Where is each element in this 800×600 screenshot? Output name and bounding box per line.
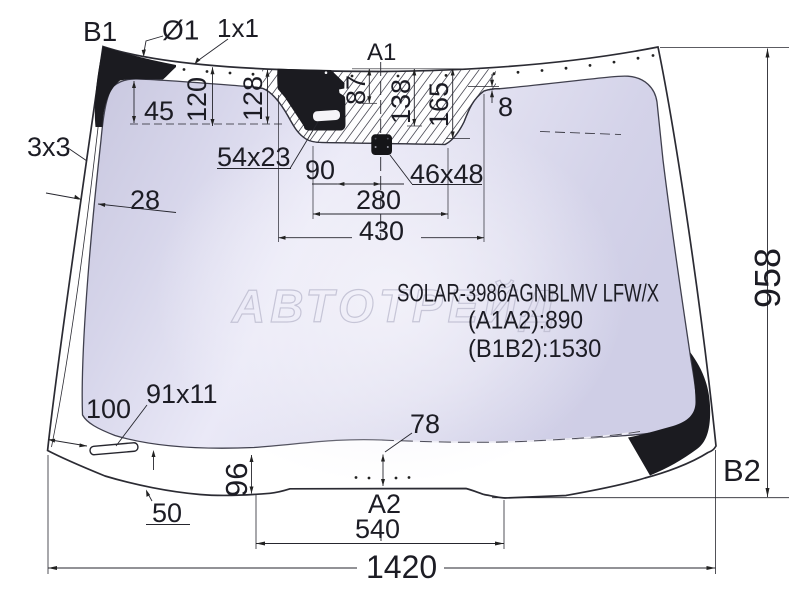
svg-text:87: 87 (341, 75, 371, 105)
svg-text:1420: 1420 (366, 549, 437, 585)
svg-text:54x23: 54x23 (217, 142, 291, 172)
svg-text:(B1B2):1530: (B1B2):1530 (468, 335, 601, 363)
svg-text:165: 165 (424, 82, 454, 127)
svg-text:B1: B1 (83, 16, 117, 47)
svg-text:138: 138 (386, 79, 416, 124)
svg-text:100: 100 (86, 394, 131, 424)
svg-text:A1: A1 (367, 39, 396, 66)
svg-text:1x1: 1x1 (217, 13, 259, 43)
svg-text:45: 45 (144, 96, 174, 126)
svg-text:(A1A2):890: (A1A2):890 (468, 307, 583, 335)
svg-text:Ø1: Ø1 (162, 15, 199, 46)
svg-text:128: 128 (238, 76, 268, 121)
svg-text:3x3: 3x3 (27, 132, 71, 162)
svg-text:50: 50 (152, 498, 182, 528)
svg-text:96: 96 (219, 463, 254, 497)
svg-text:90: 90 (305, 155, 335, 185)
svg-text:B2: B2 (723, 453, 761, 488)
svg-text:8: 8 (498, 92, 513, 122)
svg-text:120: 120 (182, 77, 212, 122)
svg-text:958: 958 (747, 248, 788, 308)
svg-text:78: 78 (410, 409, 440, 439)
svg-text:540: 540 (355, 514, 400, 544)
svg-text:430: 430 (359, 216, 404, 246)
svg-text:SOLAR-3986AGNBLMV LFW/X: SOLAR-3986AGNBLMV LFW/X (397, 279, 659, 307)
svg-text:91x11: 91x11 (146, 379, 218, 409)
svg-text:280: 280 (356, 185, 401, 215)
